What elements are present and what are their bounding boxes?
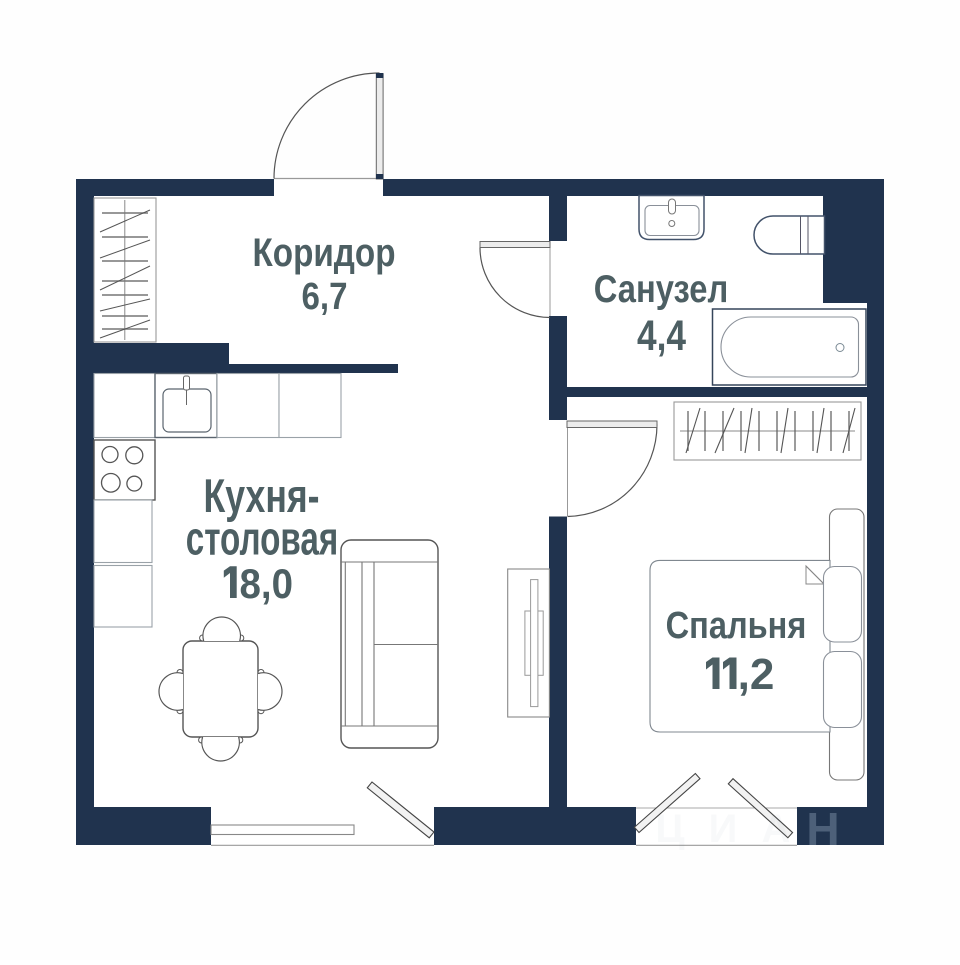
svg-text:4,4: 4,4 xyxy=(637,312,686,360)
svg-text:Ц: Ц xyxy=(655,807,684,851)
svg-text:Н: Н xyxy=(806,803,839,855)
svg-text:Коридор: Коридор xyxy=(253,231,396,275)
svg-text:8,0: 8,0 xyxy=(240,560,294,607)
svg-text:столовая: столовая xyxy=(186,512,339,565)
svg-text:,2: ,2 xyxy=(738,650,775,699)
svg-text:И: И xyxy=(709,807,738,851)
svg-text:Спальня: Спальня xyxy=(666,605,807,647)
svg-text:А: А xyxy=(762,807,791,851)
svg-text:6,7: 6,7 xyxy=(302,276,348,318)
svg-text:Санузел: Санузел xyxy=(594,268,729,311)
